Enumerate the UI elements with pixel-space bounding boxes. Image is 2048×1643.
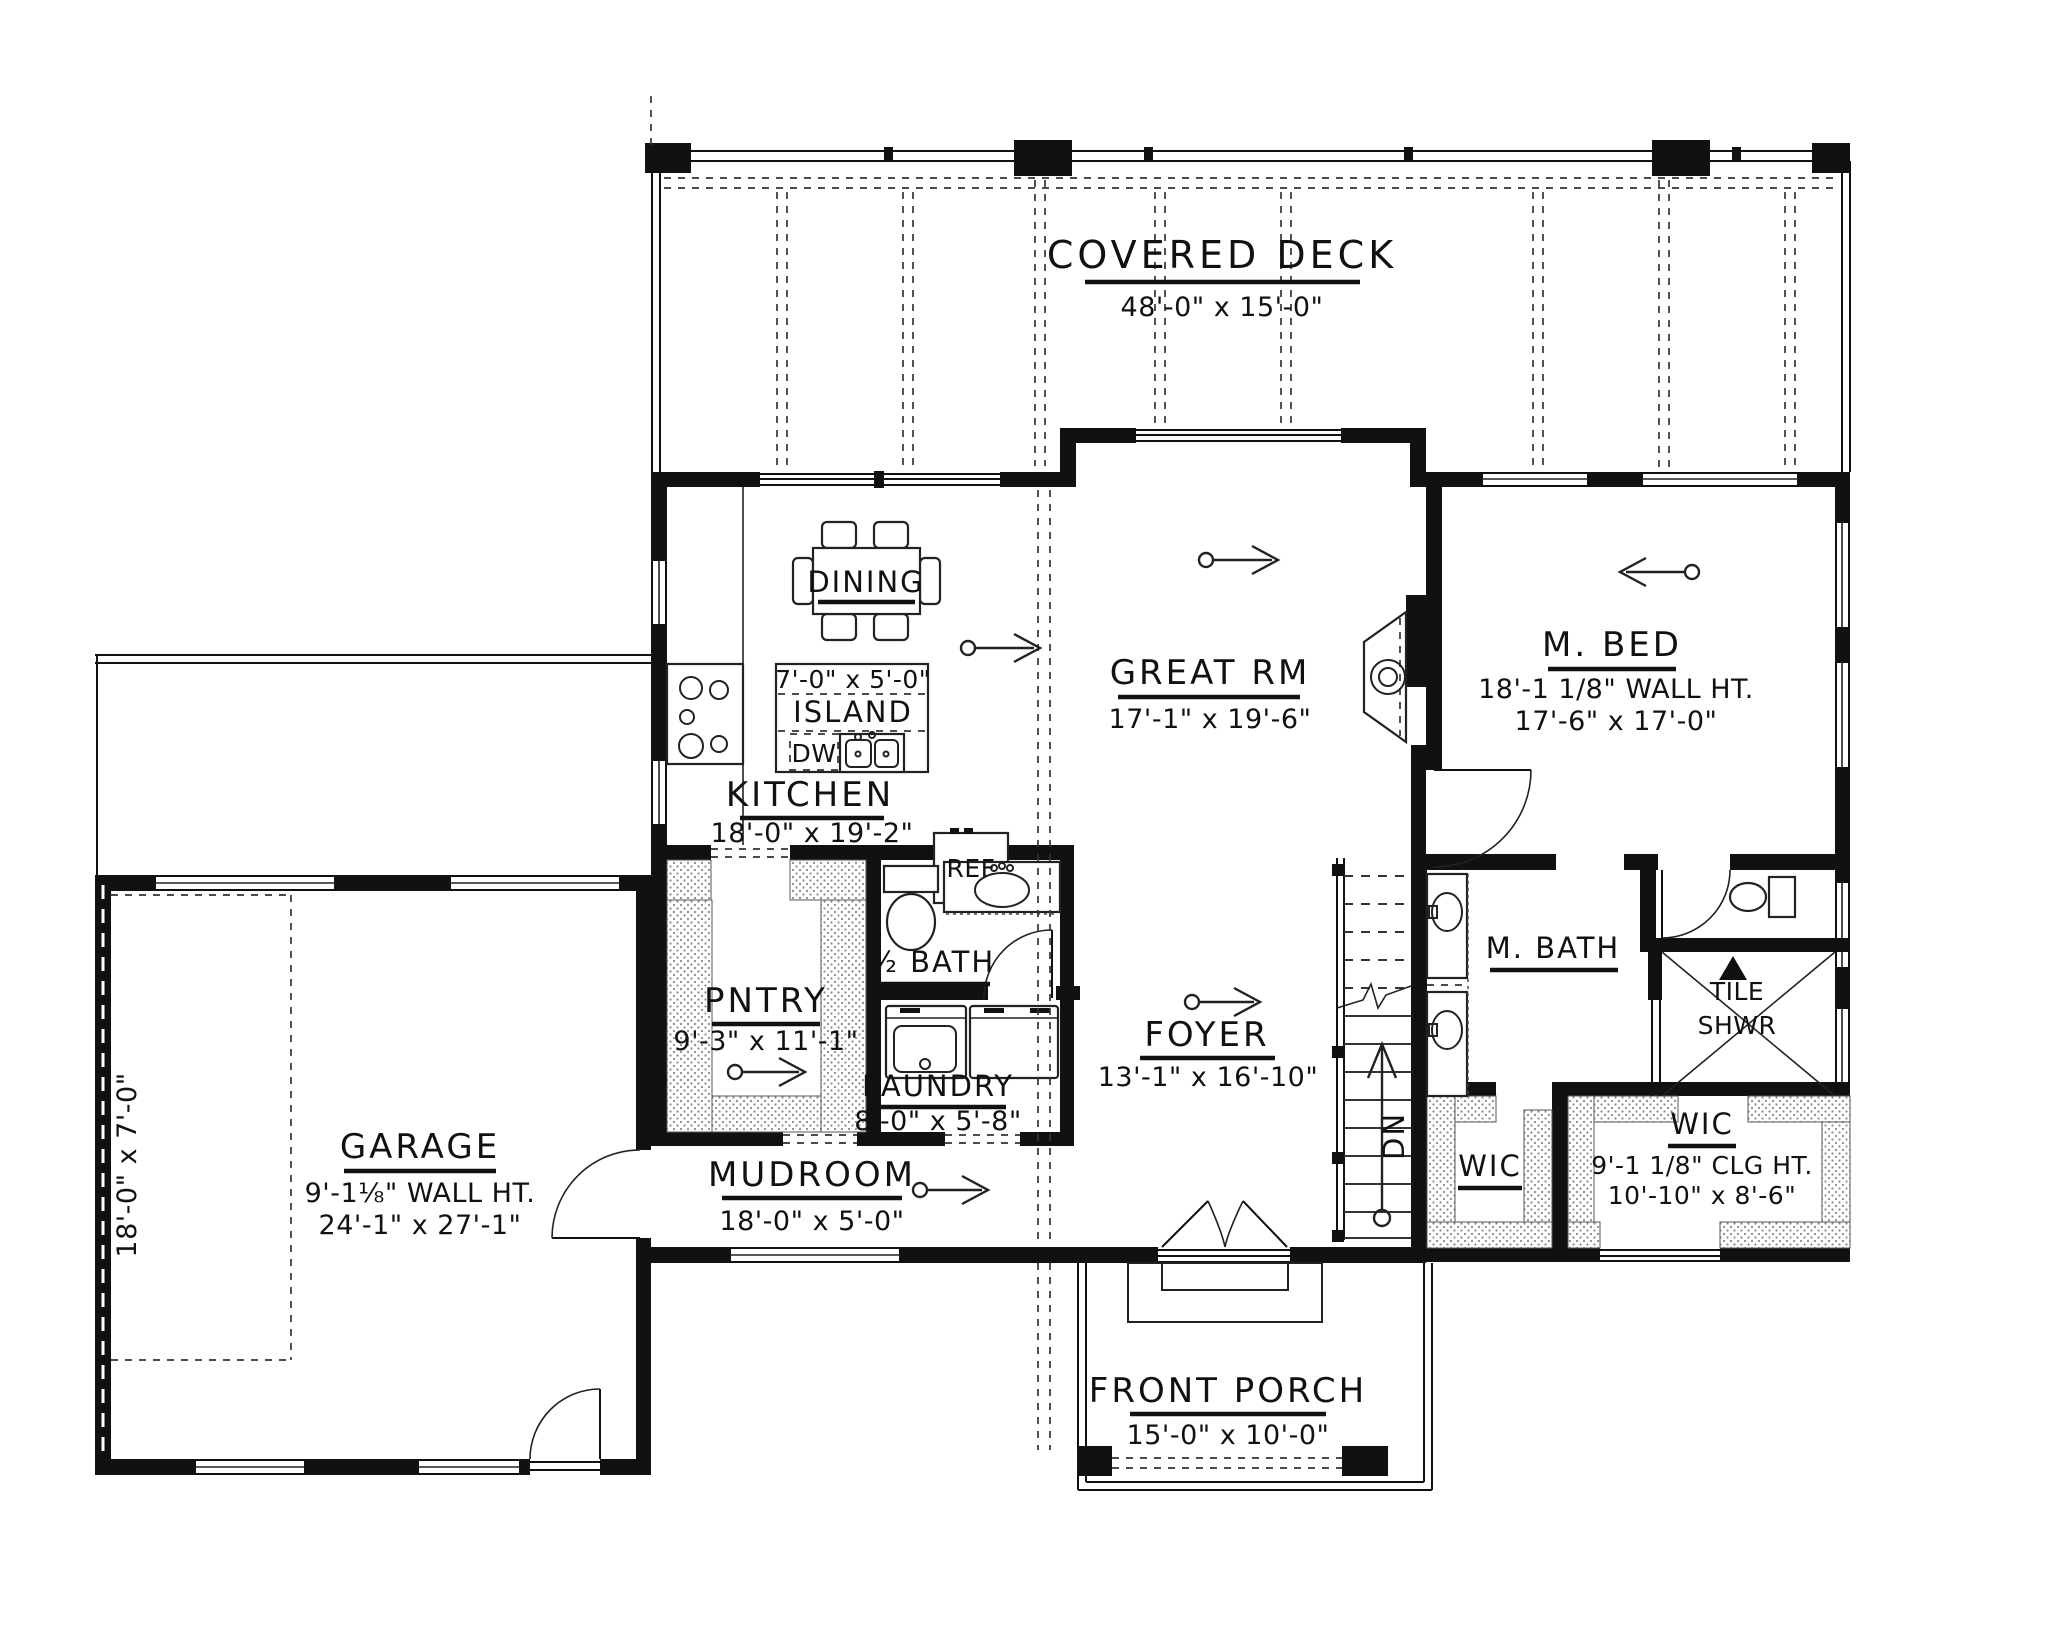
garage-exterior-door — [530, 1389, 600, 1459]
pantry-label: PNTRY — [704, 981, 828, 1021]
tile-shower-label-2: SHWR — [1698, 1011, 1777, 1040]
mudroom-label: MUDROOM — [708, 1155, 916, 1195]
garage-mudroom-door — [552, 1150, 640, 1238]
kitchen-label: KITCHEN — [726, 775, 894, 815]
garage-side-bay-dims: 18'-0" x 7'-0" — [112, 1072, 143, 1257]
dining-label: DINING — [807, 565, 924, 599]
garage — [95, 655, 651, 1475]
laundry-label: LAUNDRY — [862, 1069, 1014, 1103]
floor-plan-canvas: COVERED DECK 48'-0" x 15'-0" DINING 7'-0… — [0, 0, 2048, 1643]
porch-steps — [1162, 1263, 1288, 1290]
master-bed-dims: 17'-6" x 17'-0" — [1515, 706, 1718, 737]
fireplace — [1364, 595, 1426, 857]
wic-right-label: WIC — [1670, 1107, 1733, 1141]
wic-left-label: WIC — [1458, 1149, 1521, 1183]
deck-post — [1014, 140, 1072, 176]
wic-right-dims: 10'-10" x 8'-6" — [1608, 1181, 1796, 1210]
garage-dims: 24'-1" x 27'-1" — [319, 1210, 522, 1241]
arrow-great-room — [1199, 546, 1278, 574]
master-bed-wall-ht: 18'-1 1/8" WALL HT. — [1478, 674, 1754, 705]
arrow-kitchen — [961, 634, 1040, 662]
dryer — [970, 1006, 1058, 1078]
deck-joist-lines — [777, 180, 1795, 468]
porch-post — [1078, 1446, 1112, 1476]
stairs — [1332, 858, 1411, 1242]
deck-post — [1812, 143, 1850, 173]
master-bed-label: M. BED — [1542, 625, 1682, 665]
deck-post — [1652, 140, 1710, 176]
arrow-mudroom — [913, 1176, 988, 1204]
toilet — [884, 866, 938, 950]
garage-wall-ht: 9'-1⅛" WALL HT. — [305, 1178, 536, 1209]
stairs-dn-label: DN — [1377, 1112, 1411, 1160]
master-bath-label: M. BATH — [1486, 931, 1620, 965]
arrow-master-bed — [1620, 558, 1699, 586]
kitchen-dims: 18'-0" x 19'-2" — [711, 818, 914, 849]
porch-post — [1342, 1446, 1388, 1476]
master-bath-fixtures — [1427, 874, 1835, 1096]
pantry-dims: 9'-3" x 11'-1" — [673, 1026, 858, 1057]
stair-treads-upper — [1344, 876, 1411, 988]
foyer-label: FOYER — [1144, 1015, 1269, 1055]
island-label: ISLAND — [793, 695, 913, 729]
arrow-pantry — [728, 1058, 805, 1086]
washer — [886, 1006, 966, 1078]
cooktop — [667, 664, 743, 764]
floor-plan-page: COVERED DECK 48'-0" x 15'-0" DINING 7'-0… — [0, 0, 2048, 1643]
master-bed-door — [1434, 770, 1531, 867]
island-dims: 7'-0" x 5'-0" — [775, 665, 931, 694]
refrigerator-label: REF — [946, 854, 995, 883]
porch-steps — [1128, 1263, 1322, 1322]
half-bath-label: ½ BATH — [869, 945, 995, 979]
front-porch-dims: 15'-0" x 10'-0" — [1127, 1420, 1330, 1451]
garage-label: GARAGE — [340, 1127, 500, 1167]
tile-shower-label-1: TILE — [1709, 977, 1764, 1006]
laundry-dims: 8'-0" x 5'-8" — [854, 1106, 1022, 1137]
double-vanity — [1427, 874, 1468, 1096]
great-room-dims: 17'-1" x 19'-6" — [1109, 704, 1312, 735]
island-sink — [840, 732, 904, 772]
foyer-dims: 13'-1" x 16'-10" — [1098, 1062, 1319, 1093]
dishwasher-label: DW — [792, 739, 837, 768]
ceiling-break-lines — [1038, 490, 1050, 1450]
front-porch-label: FRONT PORCH — [1089, 1371, 1367, 1411]
master-toilet — [1730, 877, 1795, 917]
arrow-foyer — [1185, 988, 1260, 1016]
laundry-fixtures — [886, 1006, 1058, 1078]
covered-deck-label: COVERED DECK — [1047, 233, 1397, 277]
toilet-room-door — [1662, 870, 1730, 938]
wic-right-clg-ht: 9'-1 1/8" CLG HT. — [1591, 1151, 1813, 1180]
covered-deck-dims: 48'-0" x 15'-0" — [1121, 292, 1324, 323]
great-room-label: GREAT RM — [1110, 653, 1311, 693]
mudroom-dims: 18'-0" x 5'-0" — [719, 1206, 904, 1237]
front-entry-double-door — [1162, 1201, 1287, 1247]
